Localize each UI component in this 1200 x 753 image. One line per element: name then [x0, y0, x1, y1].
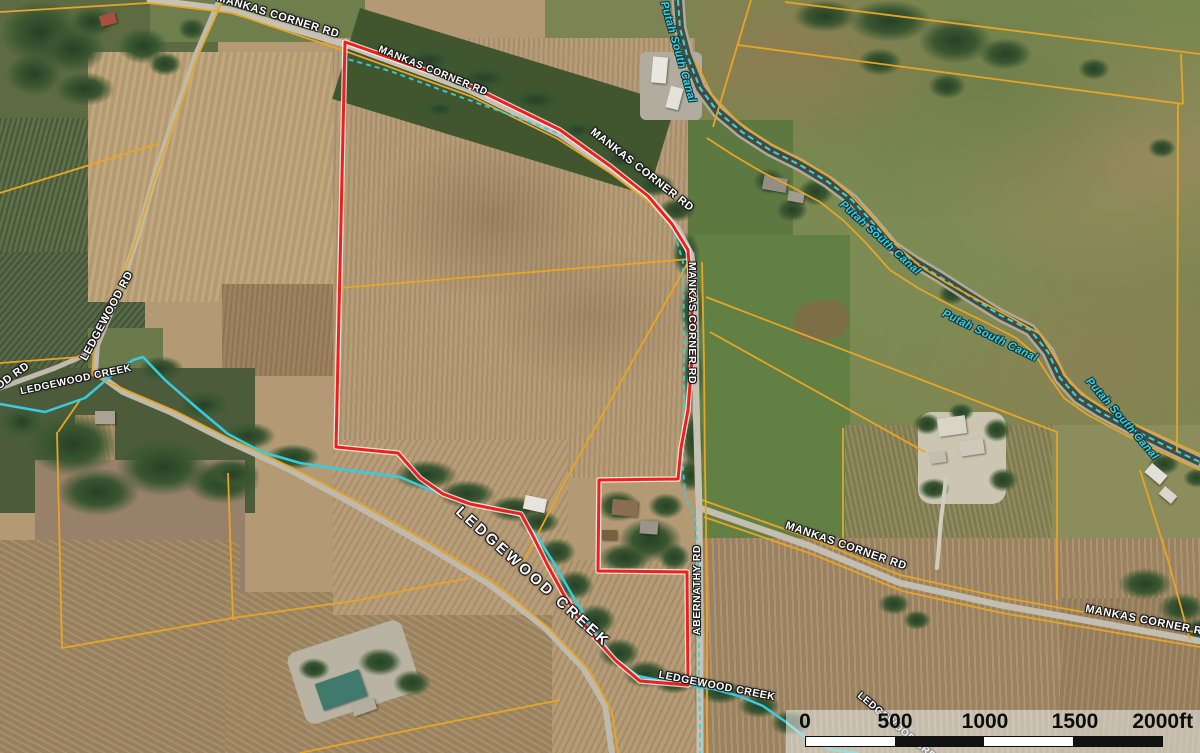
- scale-bar: 0500100015002000ft: [786, 710, 1200, 753]
- map-overlay-lines: [0, 0, 1200, 753]
- parcel-boundary: [336, 42, 692, 685]
- creek-branch-dashed-line: [340, 57, 700, 753]
- scale-tick: 1500: [1052, 710, 1099, 734]
- estate-driveway-path: [937, 478, 946, 568]
- scale-tick: 0: [799, 710, 811, 734]
- canal-service-road-path: [678, 0, 1200, 462]
- parcel-boundary-halo: [336, 42, 692, 685]
- putah-south-canal-water-line: [678, 0, 1200, 462]
- scale-bar-segment: [806, 737, 895, 746]
- mankas-corner-rd-path: [150, 0, 700, 753]
- putah-south-canal-channel: [678, 0, 1200, 462]
- aerial-map-canvas[interactable]: MANKAS CORNER RDMANKAS CORNER RDMANKAS C…: [0, 0, 1200, 753]
- scale-tick: 2000ft: [1132, 710, 1193, 734]
- scale-bar-segment: [1073, 737, 1162, 746]
- scale-tick: 1000: [962, 710, 1009, 734]
- mankas-corner-rd-east-path: [700, 508, 1200, 641]
- scale-bar-segment: [895, 737, 984, 746]
- ledgewood-creek-line: [0, 357, 858, 753]
- scale-tick: 500: [877, 710, 912, 734]
- scale-bar-segments: [805, 736, 1163, 747]
- ledgewood-rd-spur-path: [0, 350, 97, 388]
- scale-bar-segment: [984, 737, 1073, 746]
